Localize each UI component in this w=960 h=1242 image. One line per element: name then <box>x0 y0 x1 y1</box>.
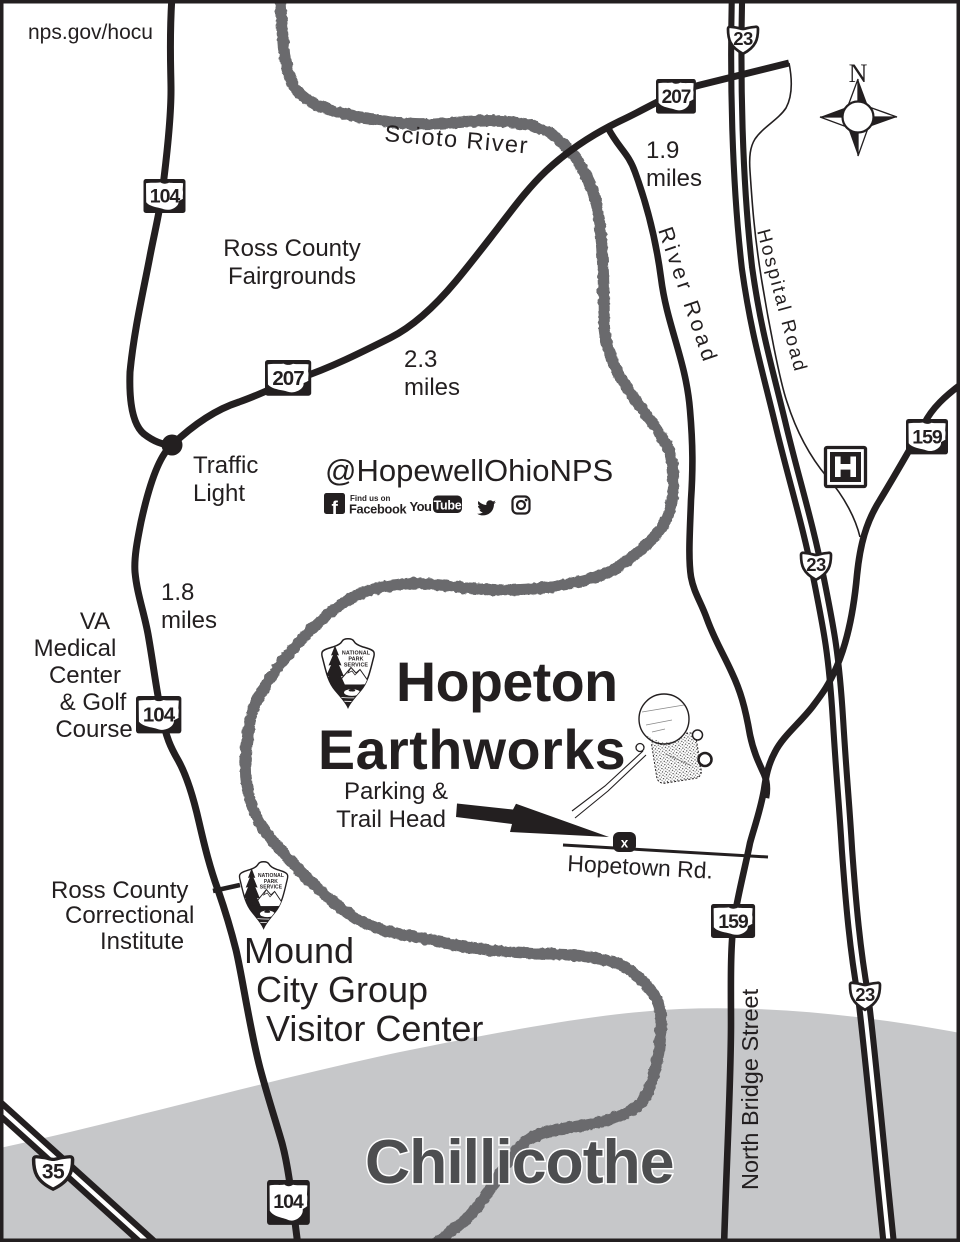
svg-text:104: 104 <box>150 186 181 208</box>
svg-text:35: 35 <box>42 1161 65 1184</box>
svg-text:23: 23 <box>806 554 826 575</box>
svg-text:207: 207 <box>272 367 304 390</box>
svg-text:Chillicothe: Chillicothe <box>365 1127 673 1197</box>
svg-text:Center: Center <box>49 662 121 689</box>
svg-text:Tube: Tube <box>434 499 462 513</box>
svg-text:f: f <box>332 499 339 520</box>
svg-text:Facebook: Facebook <box>349 502 408 517</box>
svg-text:VA: VA <box>80 608 110 635</box>
svg-text:North Bridge Street: North Bridge Street <box>737 988 763 1190</box>
svg-text:207: 207 <box>662 87 691 108</box>
svg-text:23: 23 <box>733 28 753 49</box>
svg-text:2.3: 2.3 <box>404 346 437 373</box>
svg-text:nps.gov/hocu: nps.gov/hocu <box>28 21 153 44</box>
svg-text:Parking &: Parking & <box>344 778 448 805</box>
svg-text:Earthworks: Earthworks <box>318 719 626 781</box>
svg-text:Light: Light <box>193 480 245 507</box>
svg-text:Hopeton: Hopeton <box>396 651 618 713</box>
svg-text:1.9: 1.9 <box>646 137 679 164</box>
svg-text:104: 104 <box>273 1191 304 1213</box>
svg-text:@HopewellOhioNPS: @HopewellOhioNPS <box>325 453 613 488</box>
svg-text:23: 23 <box>855 984 875 1005</box>
svg-text:miles: miles <box>646 165 702 192</box>
svg-text:N: N <box>849 59 868 88</box>
svg-text:Correctional: Correctional <box>65 902 194 929</box>
svg-text:Fairgrounds: Fairgrounds <box>228 263 356 290</box>
svg-text:Trail Head: Trail Head <box>336 806 446 833</box>
svg-text:159: 159 <box>718 911 749 933</box>
svg-text:Course: Course <box>55 716 132 743</box>
svg-text:x: x <box>621 836 629 851</box>
svg-text:Ross County: Ross County <box>223 235 360 262</box>
svg-text:104: 104 <box>143 704 176 727</box>
svg-text:miles: miles <box>161 607 217 634</box>
svg-text:Mound: Mound <box>244 930 354 971</box>
svg-text:& Golf: & Golf <box>60 689 127 716</box>
svg-text:1.8: 1.8 <box>161 579 194 606</box>
svg-text:159: 159 <box>912 427 943 449</box>
svg-text:Traffic: Traffic <box>193 452 258 479</box>
svg-text:miles: miles <box>404 374 460 401</box>
svg-text:You: You <box>410 499 432 514</box>
svg-text:Medical: Medical <box>34 635 117 662</box>
svg-text:Visitor Center: Visitor Center <box>266 1008 483 1049</box>
svg-text:City Group: City Group <box>256 969 428 1010</box>
svg-text:Ross County: Ross County <box>51 877 188 904</box>
svg-text:Institute: Institute <box>100 928 184 955</box>
